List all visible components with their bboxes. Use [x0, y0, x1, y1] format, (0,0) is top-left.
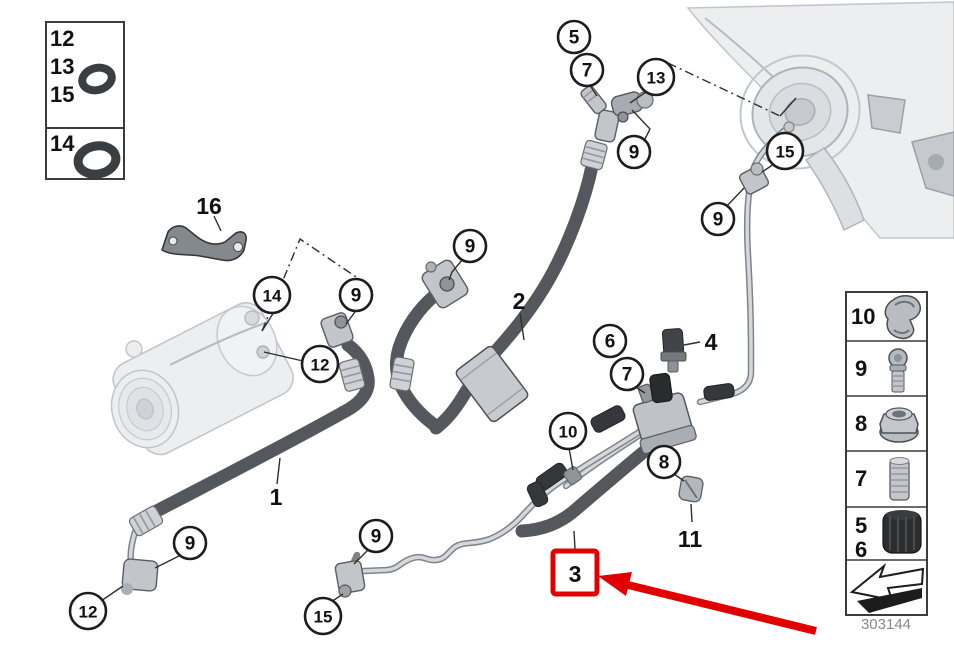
svg-text:9: 9	[185, 534, 196, 555]
label-3: 3	[569, 561, 582, 587]
callout-12a: 12	[302, 346, 338, 382]
parts-diagram-page: 5 7 13 9 15 9 14 9 12 9 6 7 10 8 9 12 9 …	[0, 0, 954, 654]
svg-text:9: 9	[629, 143, 640, 164]
highlight-overlay	[553, 551, 816, 631]
callout-9e: 9	[174, 527, 206, 559]
legend-item-14: 14	[50, 131, 75, 156]
legend-item-10: 10	[851, 304, 875, 329]
legend-item-9: 9	[855, 356, 867, 381]
callout-15b: 15	[305, 598, 341, 634]
svg-text:7: 7	[582, 61, 593, 82]
svg-text:12: 12	[311, 356, 330, 375]
svg-text:5: 5	[569, 28, 580, 49]
legend-item-6: 6	[855, 537, 867, 562]
svg-text:7: 7	[622, 365, 633, 386]
callout-7: 7	[571, 54, 603, 86]
callout-12b: 12	[70, 593, 106, 629]
o-ring-large-icon	[76, 143, 118, 177]
callout-9d: 9	[454, 230, 486, 262]
svg-text:9: 9	[371, 527, 382, 548]
legend-left: 12 13 15 14	[46, 22, 124, 179]
drawing-number: 303144	[861, 616, 911, 633]
label-1: 1	[270, 484, 283, 510]
svg-text:10: 10	[559, 423, 578, 442]
legend-item-13: 13	[50, 54, 74, 79]
ac-lines-parts-diagram: 5 7 13 9 15 9 14 9 12 9 6 7 10 8 9 12 9 …	[0, 0, 954, 654]
legend-item-8: 8	[855, 411, 867, 436]
callout-8: 8	[648, 446, 680, 478]
highlight-arrow-shaft	[624, 584, 816, 631]
screw-bolt-icon	[889, 349, 907, 392]
svg-text:9: 9	[465, 237, 476, 258]
svg-text:6: 6	[605, 332, 616, 353]
svg-text:9: 9	[351, 286, 362, 307]
label-16: 16	[196, 193, 222, 219]
flange-nut-icon	[880, 408, 918, 442]
callout-9f: 9	[360, 520, 392, 552]
hose-connector-icon	[890, 458, 909, 501]
svg-text:8: 8	[659, 453, 670, 474]
o-ring-small-icon	[80, 64, 115, 93]
callout-14: 14	[254, 277, 290, 313]
callout-6: 6	[594, 325, 626, 357]
protective-cap-icon	[883, 510, 921, 553]
legend-item-15: 15	[50, 82, 74, 107]
label-2: 2	[513, 288, 526, 314]
compressor-background-drawing	[103, 296, 299, 460]
svg-text:14: 14	[263, 287, 282, 306]
legend-item-12: 12	[50, 26, 74, 51]
callout-7b: 7	[611, 358, 643, 390]
svg-text:13: 13	[647, 69, 666, 88]
svg-text:9: 9	[713, 210, 724, 231]
callout-9b: 9	[702, 203, 734, 235]
elbow-pipe-bottom-left	[131, 532, 135, 563]
callout-13: 13	[638, 59, 674, 95]
legend-item-7: 7	[855, 466, 867, 491]
pipe-clamp-icon	[885, 296, 920, 339]
callout-5: 5	[558, 21, 590, 53]
callout-9c: 9	[340, 279, 372, 311]
callout-9a: 9	[618, 136, 650, 168]
label-11: 11	[678, 526, 703, 552]
bracket-part-16	[162, 226, 246, 261]
direction-arrow-icon	[852, 566, 923, 613]
svg-text:15: 15	[314, 608, 333, 627]
pressure-sensor-part-4	[661, 328, 686, 372]
svg-text:15: 15	[776, 143, 795, 162]
svg-text:12: 12	[79, 603, 98, 622]
legend-item-5: 5	[855, 513, 867, 538]
callout-15a: 15	[767, 133, 803, 169]
muffler-block	[454, 345, 529, 424]
label-4: 4	[705, 329, 718, 355]
callout-10: 10	[550, 413, 586, 449]
engine-background-drawing	[688, 2, 954, 238]
legend-right: 10 9 8 7 5 6	[846, 292, 927, 615]
highlight-arrow-head	[598, 572, 632, 596]
